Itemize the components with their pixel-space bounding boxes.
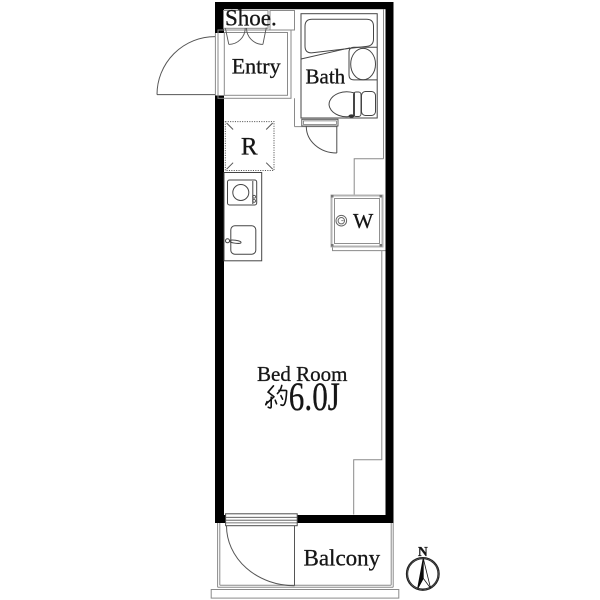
svg-text:W: W <box>353 209 374 233</box>
svg-text:Balcony: Balcony <box>304 546 381 571</box>
svg-text:Bath: Bath <box>306 65 346 89</box>
svg-text:R: R <box>241 134 258 161</box>
svg-text:Shoe.: Shoe. <box>225 6 277 31</box>
svg-text:6.0J: 6.0J <box>289 374 340 419</box>
svg-text:N: N <box>418 544 428 559</box>
svg-text:Entry: Entry <box>232 54 281 79</box>
